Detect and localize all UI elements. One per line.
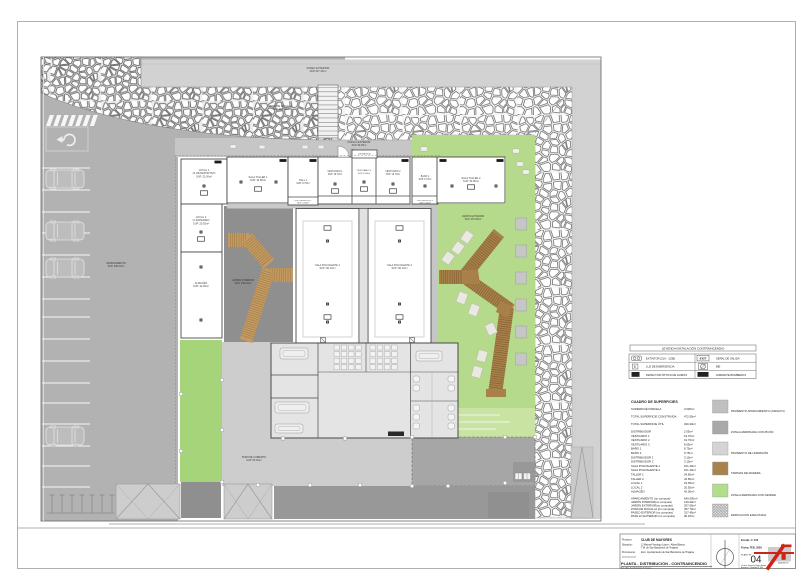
svg-text:90.40m²: 90.40m²: [684, 514, 694, 518]
svg-text:TOTAL SUPERFICIE CONSTRUIDA: TOTAL SUPERFICIE CONSTRUIDA: [631, 415, 677, 419]
svg-text:HIDRANTE BOMBEROS: HIDRANTE BOMBEROS: [716, 373, 746, 377]
svg-text:SUP. 6.75m²: SUP. 6.75m²: [419, 178, 432, 181]
svg-text:42.00m²: 42.00m²: [684, 490, 694, 494]
svg-text:PASILLO EXTERIOR (no computa): PASILLO EXTERIOR (no computa): [631, 514, 675, 518]
svg-text:LEYENDA INSTALACIÓN CONTRAINCE: LEYENDA INSTALACIÓN CONTRAINCENDIO: [662, 346, 725, 351]
svg-text:ZONA AJARDINADA CON CESPED: ZONA AJARDINADA CON CESPED: [731, 493, 776, 497]
svg-text:SUP.317.45m²: SUP.317.45m²: [310, 69, 327, 73]
svg-text:Arquitecto. Colegiado N° 643: Arquitecto. Colegiado N° 643: [741, 566, 763, 569]
svg-text:3.000m²: 3.000m²: [684, 407, 694, 411]
svg-text:SUP. 23.05m²: SUP. 23.05m²: [196, 174, 212, 178]
svg-text:Fecha: FEB. 2009: Fecha: FEB. 2009: [741, 547, 762, 550]
svg-text:BAÑO 1: BAÑO 1: [631, 446, 642, 451]
svg-text:SUP. 8.05m²: SUP. 8.05m²: [358, 172, 371, 175]
svg-text:DH: DH: [634, 373, 638, 377]
svg-text:E: E: [634, 365, 636, 369]
svg-text:SUP. 457.70m²: SUP. 457.70m²: [273, 108, 290, 111]
svg-text:SUP. 90.40m²: SUP. 90.40m²: [246, 459, 262, 462]
svg-text:H-B: H-B: [700, 373, 706, 377]
svg-text:ALMACÉN: ALMACÉN: [631, 489, 645, 494]
svg-text:430.40m²: 430.40m²: [684, 422, 696, 426]
svg-text:BAÑO 2: BAÑO 2: [631, 450, 642, 455]
svg-text:SUP. 19.70m²: SUP. 19.70m²: [328, 173, 342, 176]
svg-text:SUP. 34.80m²: SUP. 34.80m²: [463, 179, 479, 183]
svg-text:Proyecto:: Proyecto:: [622, 539, 632, 542]
svg-text:SUP. 101.40m²: SUP. 101.40m²: [319, 267, 335, 270]
svg-text:Denominación:: Denominación:: [622, 557, 637, 559]
svg-text:VESTUARIO 2: VESTUARIO 2: [385, 170, 401, 173]
svg-text:TARIMAS DE MADERA: TARIMAS DE MADERA: [731, 471, 761, 475]
svg-text:PAVIMENTO APARCAMIENTO (ASFALT: PAVIMENTO APARCAMIENTO (ASFALTO): [731, 409, 785, 413]
svg-text:VESTUARIO 3: VESTUARIO 3: [357, 169, 372, 172]
svg-text:DISTRIBUIDOR: DISTRIBUIDOR: [358, 154, 372, 156]
svg-text:T.M. de San Bartolomé de Tiraj: T.M. de San Bartolomé de Tirajana: [641, 547, 678, 550]
svg-text:SUPERFICIE PARCELA: SUPERFICIE PARCELA: [631, 407, 662, 411]
svg-text:SUP. 42.00m²: SUP. 42.00m²: [193, 284, 209, 288]
svg-text:EXTINTOR (21A - 113B): EXTINTOR (21A - 113B): [646, 357, 675, 361]
svg-text:EDIFICACION EJECUTADA: EDIFICACION EJECUTADA: [731, 513, 766, 517]
svg-text:SUP. 34.80m²: SUP. 34.80m²: [250, 178, 266, 182]
svg-text:BAÑO 1: BAÑO 1: [421, 175, 430, 178]
svg-text:SUP. 19.70m²: SUP. 19.70m²: [386, 173, 400, 176]
svg-text:BIE: BIE: [716, 365, 721, 369]
svg-text:Exm. Ayto. San Bartolomé de Ti: Exm. Ayto. San Bartolomé de Tirajana: [621, 566, 651, 569]
svg-text:SUP. 3.10m²: SUP. 3.10m²: [419, 202, 431, 205]
svg-text:EXIT: EXIT: [700, 357, 707, 361]
svg-text:SUP. 257.65m²: SUP. 257.65m²: [465, 218, 482, 221]
svg-text:Escala: 1 / 100: Escala: 1 / 100: [741, 539, 759, 542]
svg-text:VESTUARIO 1: VESTUARIO 1: [327, 170, 343, 173]
svg-text:Promovente:: Promovente:: [622, 551, 636, 554]
svg-text:SUP. 8.75m²: SUP. 8.75m²: [296, 182, 310, 185]
svg-text:SUP. 2.05m²: SUP. 2.05m²: [297, 202, 309, 205]
svg-text:SUP. 640.00m²: SUP. 640.00m²: [108, 265, 125, 268]
svg-text:LUZ DE EMERGENCIA: LUZ DE EMERGENCIA: [646, 365, 675, 369]
svg-text:TOTAL SUPERFICIE ÚTIL: TOTAL SUPERFICIE ÚTIL: [631, 421, 664, 426]
svg-text:Exm. Ayuntamiento de San Barto: Exm. Ayuntamiento de San Bartolomé de Ti…: [641, 551, 695, 554]
svg-text:PLANTA - DISTRIBUCIÓN - CONTRA: PLANTA - DISTRIBUCIÓN - CONTRAINCENDIO: [621, 561, 707, 566]
svg-text:ZONA AJARDINADA CON PICÓN: ZONA AJARDINADA CON PICÓN: [731, 429, 773, 434]
svg-text:04: 04: [751, 555, 762, 566]
svg-text:SUP. 20.55m²: SUP. 20.55m²: [193, 221, 209, 225]
svg-text:472.55m²: 472.55m²: [684, 415, 696, 419]
svg-text:DISTRIBUIDOR 1: DISTRIBUIDOR 1: [295, 200, 312, 202]
svg-text:PAVIMENTO DE HORMIGÓN: PAVIMENTO DE HORMIGÓN: [731, 450, 768, 455]
svg-text:CLUB DE MAYORES: CLUB DE MAYORES: [641, 538, 672, 542]
svg-text:Situación:: Situación:: [622, 544, 633, 547]
svg-text:SUP. 101.40m²: SUP. 101.40m²: [391, 267, 407, 270]
svg-text:SUP. 130.00m²: SUP. 130.00m²: [235, 282, 252, 285]
svg-text:CUADRO DE SUPERFICIES: CUADRO DE SUPERFICIES: [631, 400, 678, 404]
svg-text:SUP. 90.45m²: SUP. 90.45m²: [352, 144, 367, 147]
